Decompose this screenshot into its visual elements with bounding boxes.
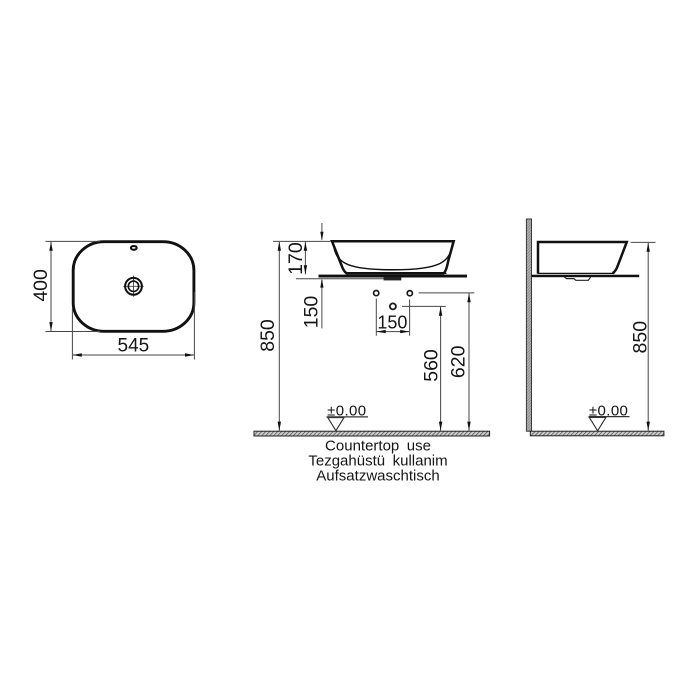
svg-text:170: 170	[285, 242, 307, 275]
svg-text:Aufsatzwaschtisch: Aufsatzwaschtisch	[316, 468, 439, 485]
svg-text:850: 850	[257, 319, 279, 352]
svg-text:850: 850	[629, 321, 651, 354]
svg-text:620: 620	[447, 345, 469, 378]
svg-text:400: 400	[30, 269, 52, 302]
svg-text:560: 560	[420, 349, 442, 382]
svg-text:150: 150	[301, 296, 323, 329]
svg-text:150: 150	[377, 313, 407, 333]
svg-text:545: 545	[118, 336, 150, 357]
